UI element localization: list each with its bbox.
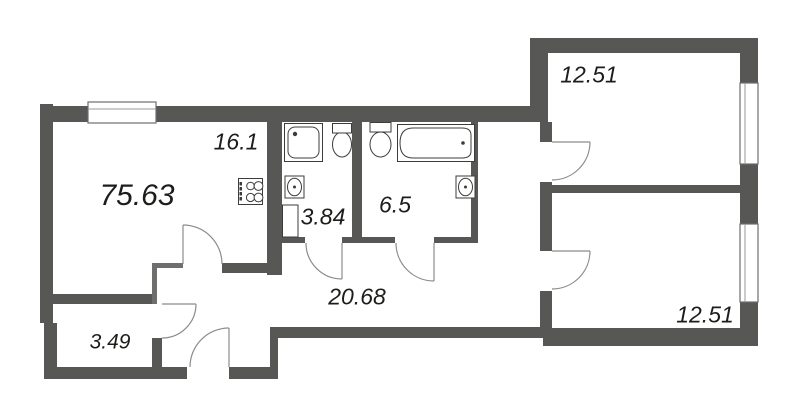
room-area-label-wardrobe: 3.49 [90,332,131,353]
door-bedroom-upper [552,142,590,180]
wall-hall-bottom [270,327,543,338]
door-bathroom-small [306,243,342,279]
wall-bath-small-bottom-a [282,237,305,243]
wall-wardrobe-top [53,294,157,304]
partition-walls [152,263,183,304]
wall-right-section-left-upper [530,53,548,106]
door-bathroom-large [396,243,434,281]
wall-living-bottom [222,263,272,273]
wall-inter-bedroom [552,185,740,193]
room-area-label-total: 75.63 [99,181,174,211]
partition-living-v [152,263,157,304]
wall-left-upper [40,104,53,323]
wall-bottom-entry-right [229,367,278,379]
window-top [88,102,156,123]
sink [285,176,304,198]
wall-right-section-bottom [543,328,758,346]
wall-bottom-left [44,367,187,379]
stove [239,179,263,205]
wall-right-c [740,302,758,328]
sink [456,176,475,198]
wall-right-b [740,164,758,224]
shower-tray [285,124,323,162]
wall-right-section-left-a [540,122,552,142]
wall-right-a [740,53,758,83]
wall-bath-large-bottom-a [362,237,395,243]
room-area-label-living: 16.1 [214,131,259,154]
door-wardrobe [162,304,196,338]
duct-niche [283,205,299,237]
toilet [333,124,352,158]
room-area-label-bathroom-large: 6.5 [379,194,411,217]
door-bedroom-lower [552,251,590,289]
wall-inter-bath [352,122,362,243]
room-area-label-bathroom-small: 3.84 [301,206,346,229]
wall-right-section-top [530,38,758,53]
wall-core [267,122,282,275]
window-bedroom-lower [740,224,758,302]
wall-right-section-left-c [540,291,552,328]
floor-plan: 75.63 16.1 3.84 6.5 20.68 3.49 12.51 12.… [0,0,800,416]
toilet [370,123,391,158]
bathtub [398,125,475,162]
window-bedroom-upper [740,83,758,164]
room-area-label-bedroom-upper: 12.51 [560,64,618,87]
room-area-label-bedroom-lower: 12.51 [676,304,734,327]
wall-right-section-left-b [540,182,552,251]
wall-bath-small-bottom-b [342,237,352,243]
wall-wardrobe-right [152,338,162,367]
door-entry [190,328,229,367]
door-living [183,225,222,264]
room-area-label-hallway: 20.68 [328,286,386,309]
